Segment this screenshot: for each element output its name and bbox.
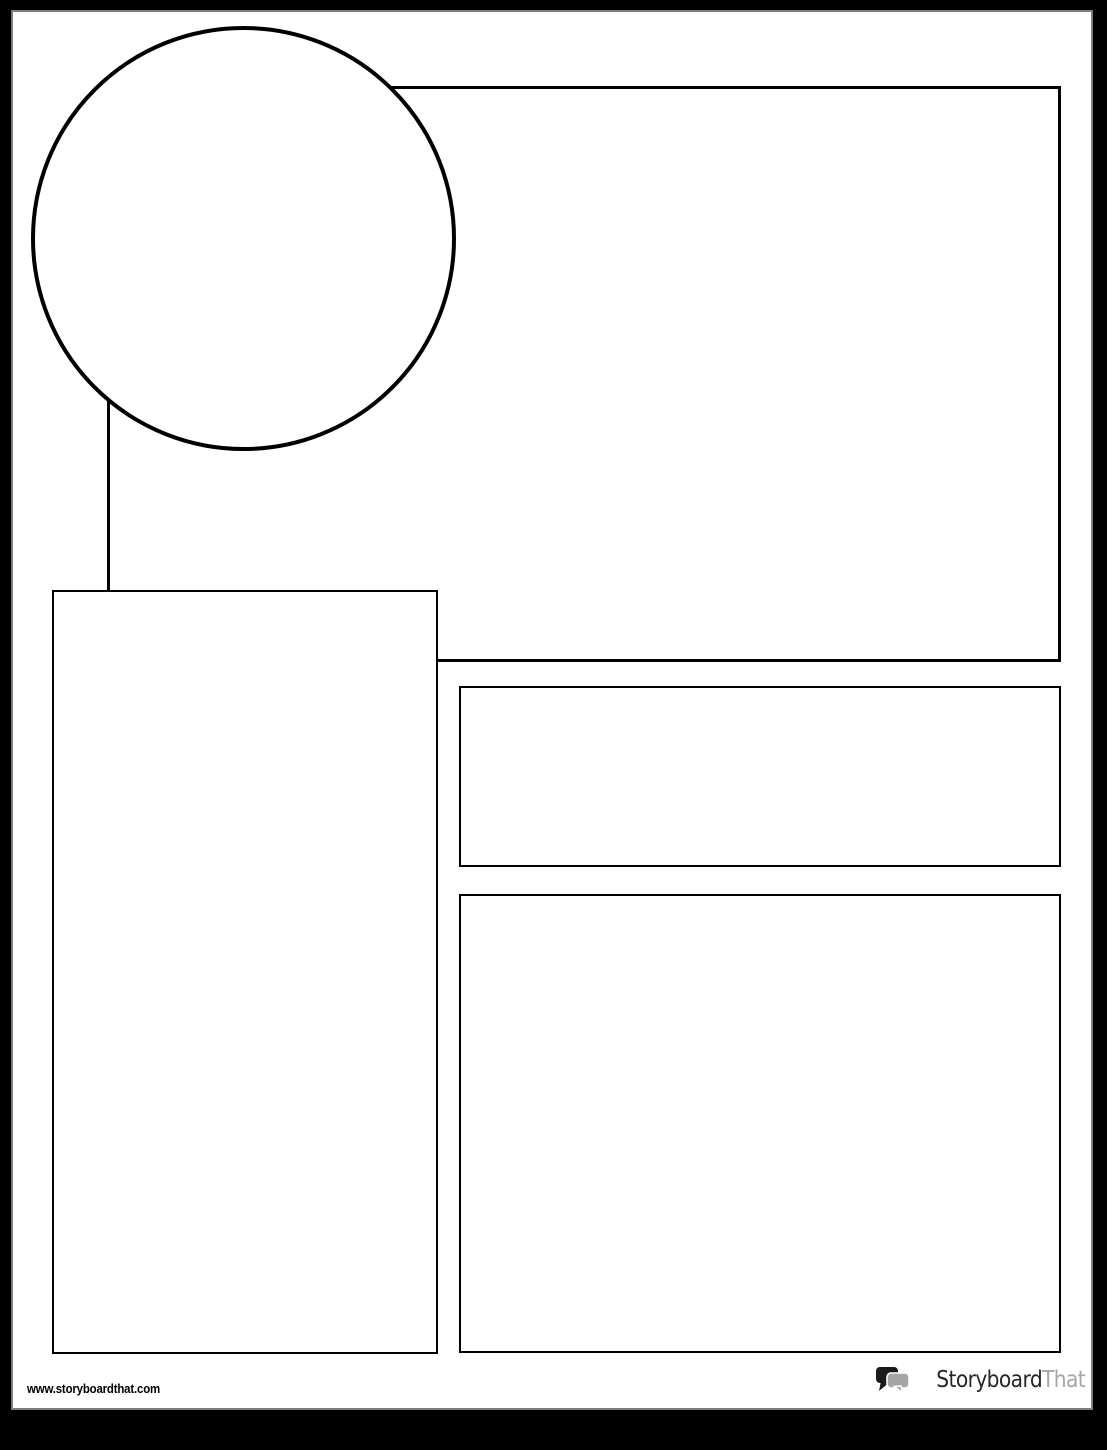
body-box: [459, 894, 1061, 1353]
speech-bubbles-icon: [876, 1366, 910, 1395]
circle-frame: [31, 26, 456, 451]
storyboardthat-logo: StoryboardThat: [876, 1366, 1085, 1395]
logo-text: StoryboardThat: [936, 1369, 1085, 1392]
logo-text-primary: Storyboard: [936, 1367, 1042, 1393]
template-canvas: www.storyboardthat.com StoryboardThat: [0, 0, 1107, 1450]
website-url: www.storyboardthat.com: [27, 1381, 160, 1396]
left-column-box: [52, 590, 438, 1354]
logo-text-secondary: That: [1042, 1367, 1085, 1393]
subheading-box: [459, 686, 1061, 867]
